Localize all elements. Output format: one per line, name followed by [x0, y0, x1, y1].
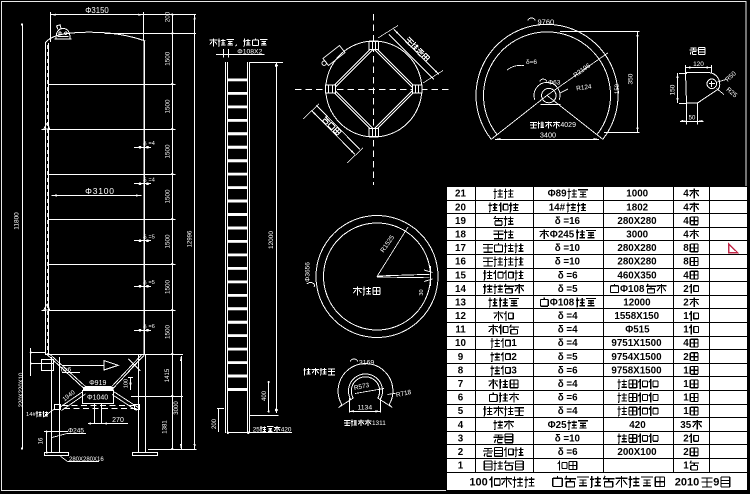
svg-text:1500: 1500 — [164, 144, 171, 159]
svg-text:1311: 1311 — [372, 420, 386, 427]
svg-text:4: 4 — [458, 420, 464, 431]
svg-text:δ =4: δ =4 — [558, 338, 578, 349]
svg-text:420: 420 — [629, 420, 646, 431]
svg-text:δ =4: δ =4 — [558, 325, 578, 336]
svg-text:=5: =5 — [149, 235, 155, 241]
svg-text:Φ89: Φ89 — [548, 189, 567, 200]
svg-text:280X280: 280X280 — [617, 257, 657, 268]
svg-text:δ =6: δ =6 — [558, 393, 578, 404]
svg-text:2010: 2010 — [675, 477, 699, 489]
svg-text:25: 25 — [253, 426, 261, 433]
svg-text:200: 200 — [164, 11, 171, 22]
svg-text:=4: =4 — [149, 141, 155, 147]
svg-text:4: 4 — [683, 189, 689, 200]
svg-text:9758X1500: 9758X1500 — [611, 365, 662, 376]
svg-text:δ =5: δ =5 — [558, 352, 578, 363]
svg-text:14#: 14# — [549, 202, 566, 213]
svg-text:7: 7 — [458, 379, 464, 390]
svg-text:350: 350 — [628, 73, 635, 84]
svg-text:Φ108: Φ108 — [550, 298, 575, 309]
svg-text:400: 400 — [262, 390, 268, 401]
svg-text:1: 1 — [683, 406, 689, 417]
svg-text:9: 9 — [458, 352, 464, 363]
svg-text:3000: 3000 — [626, 230, 648, 241]
svg-text:Φ1040: Φ1040 — [87, 395, 108, 402]
svg-text:20: 20 — [455, 202, 466, 213]
svg-text:12: 12 — [455, 311, 466, 322]
svg-text:Φ63: Φ63 — [548, 80, 561, 87]
svg-text:1500: 1500 — [164, 234, 171, 249]
svg-text:9: 9 — [713, 477, 719, 489]
svg-text:12000: 12000 — [268, 231, 275, 249]
svg-text:280X280: 280X280 — [617, 216, 657, 227]
svg-text:2: 2 — [683, 433, 689, 444]
svg-text:100: 100 — [469, 477, 487, 489]
svg-text:1500: 1500 — [164, 189, 171, 204]
svg-text:1: 1 — [683, 461, 689, 472]
svg-text:200X100: 200X100 — [617, 447, 657, 458]
svg-text:=4: =4 — [149, 178, 155, 184]
svg-text:200: 200 — [212, 418, 218, 429]
svg-text:1500: 1500 — [164, 99, 171, 114]
svg-text:=5: =5 — [149, 280, 155, 286]
svg-text:Φ25: Φ25 — [548, 420, 567, 431]
svg-text:11800: 11800 — [14, 212, 21, 230]
svg-text:9751X1500: 9751X1500 — [611, 338, 662, 349]
svg-text:6: 6 — [458, 393, 464, 404]
svg-text:1415: 1415 — [165, 368, 171, 382]
svg-text:16: 16 — [39, 437, 45, 444]
svg-text:1: 1 — [683, 365, 689, 376]
svg-text:9760: 9760 — [538, 18, 555, 27]
svg-text:4: 4 — [683, 216, 689, 227]
svg-text:9754X1500: 9754X1500 — [611, 352, 662, 363]
svg-text:15: 15 — [455, 270, 466, 281]
svg-text:270: 270 — [112, 417, 124, 424]
svg-text:3000: 3000 — [174, 401, 180, 415]
svg-text:3: 3 — [511, 365, 517, 376]
svg-text:1: 1 — [683, 379, 689, 390]
svg-text:Φ3656: Φ3656 — [305, 262, 312, 282]
svg-text:2: 2 — [458, 447, 464, 458]
svg-text:2: 2 — [511, 352, 517, 363]
svg-text:280X280: 280X280 — [617, 243, 657, 254]
svg-text:14: 14 — [455, 284, 466, 295]
svg-text:Φ3150: Φ3150 — [85, 6, 109, 15]
svg-text:1000: 1000 — [626, 189, 648, 200]
svg-text:3: 3 — [458, 433, 464, 444]
svg-text:1802: 1802 — [626, 202, 648, 213]
svg-text:Φ108: Φ108 — [620, 284, 645, 295]
svg-text:11: 11 — [455, 325, 466, 336]
svg-text:19: 19 — [455, 216, 466, 227]
svg-text:δ =5: δ =5 — [558, 284, 578, 295]
svg-text:220X220X10: 220X220X10 — [19, 372, 25, 407]
svg-text:3400: 3400 — [540, 130, 556, 139]
svg-text:13: 13 — [455, 298, 466, 309]
svg-text:1: 1 — [683, 311, 689, 322]
svg-text:8: 8 — [683, 243, 689, 254]
svg-text:δ =6: δ =6 — [558, 365, 578, 376]
svg-text:1: 1 — [458, 461, 464, 472]
svg-text:12000: 12000 — [623, 298, 651, 309]
svg-text:120: 120 — [693, 61, 704, 68]
svg-text:2: 2 — [683, 298, 689, 309]
svg-text:150: 150 — [615, 83, 621, 94]
svg-text:420: 420 — [281, 426, 292, 433]
svg-text:δ =4: δ =4 — [558, 311, 578, 322]
svg-text:1: 1 — [683, 325, 689, 336]
svg-text:δ =4: δ =4 — [558, 406, 578, 417]
svg-text:Φ919: Φ919 — [89, 380, 106, 387]
svg-text:δ =4: δ =4 — [558, 379, 578, 390]
svg-text:12996: 12996 — [188, 230, 194, 247]
svg-text:3169: 3169 — [359, 359, 374, 366]
svg-text:2: 2 — [683, 352, 689, 363]
svg-text:1: 1 — [511, 338, 517, 349]
svg-text:δ=6: δ=6 — [526, 59, 537, 66]
svg-text:4: 4 — [683, 202, 689, 213]
svg-text:4029: 4029 — [560, 122, 576, 129]
svg-text:δ =10: δ =10 — [555, 243, 581, 254]
svg-text:δ =10: δ =10 — [555, 433, 581, 444]
svg-text:150: 150 — [670, 84, 677, 95]
svg-text:8: 8 — [458, 365, 464, 376]
svg-text:δ =16: δ =16 — [555, 216, 581, 227]
svg-text:10: 10 — [455, 338, 466, 349]
svg-text:35: 35 — [680, 420, 691, 431]
svg-text:Φ515: Φ515 — [625, 325, 650, 336]
svg-text:4: 4 — [683, 270, 689, 281]
svg-text:100: 100 — [123, 379, 129, 388]
svg-text:Φ245: Φ245 — [550, 230, 575, 241]
svg-text:4: 4 — [683, 230, 689, 241]
svg-text:1134: 1134 — [357, 404, 372, 411]
svg-text:1381: 1381 — [163, 420, 169, 434]
svg-text:21: 21 — [455, 189, 466, 200]
svg-text:1500: 1500 — [164, 51, 171, 66]
svg-text:2: 2 — [683, 284, 689, 295]
svg-text:δ =10: δ =10 — [555, 257, 581, 268]
svg-text:460X350: 460X350 — [617, 270, 657, 281]
svg-text:16: 16 — [455, 257, 466, 268]
svg-text:Φ3100: Φ3100 — [85, 186, 115, 196]
svg-text:4: 4 — [683, 338, 689, 349]
svg-text:8: 8 — [683, 257, 689, 268]
svg-text:1500: 1500 — [164, 325, 171, 340]
svg-text:1500: 1500 — [164, 280, 171, 295]
svg-text:18: 18 — [455, 230, 466, 241]
svg-text:1558X150: 1558X150 — [614, 311, 659, 322]
svg-text:δ =6: δ =6 — [558, 447, 578, 458]
svg-text:30: 30 — [419, 289, 425, 295]
svg-text:δ =6: δ =6 — [558, 270, 578, 281]
svg-text:2: 2 — [683, 447, 689, 458]
svg-text:5: 5 — [458, 406, 464, 417]
svg-text:1: 1 — [683, 393, 689, 404]
svg-text:17: 17 — [455, 243, 466, 254]
svg-text:14#: 14# — [26, 412, 36, 418]
svg-text:=6: =6 — [149, 324, 155, 330]
svg-text:50: 50 — [689, 115, 696, 121]
